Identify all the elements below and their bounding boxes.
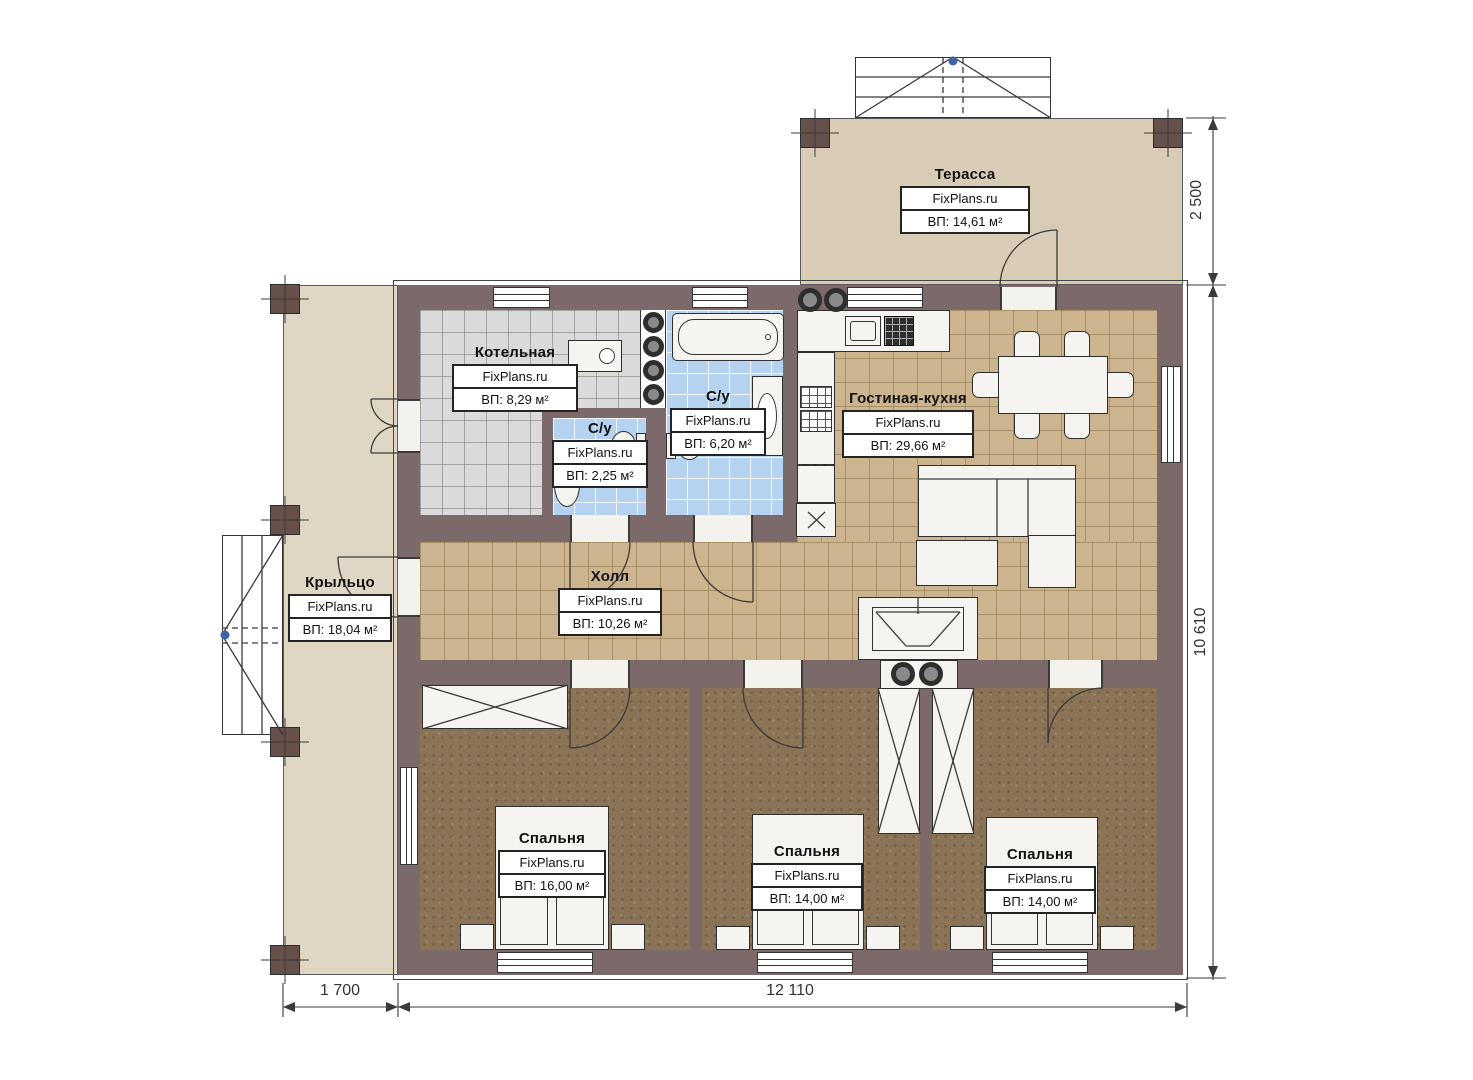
room-name: Гостиная-кухня	[842, 390, 974, 407]
bathtub-drain	[765, 334, 771, 340]
watermark-text: FixPlans.ru	[902, 188, 1028, 211]
window-top-1	[493, 287, 550, 308]
stove-burners	[800, 386, 832, 408]
terrace-column	[1153, 118, 1183, 148]
sink-basin	[850, 321, 876, 341]
label-box: FixPlans.ru ВП: 14,00 м²	[984, 866, 1096, 914]
watermark-text: FixPlans.ru	[554, 442, 646, 465]
label-box: FixPlans.ru ВП: 18,04 м²	[288, 594, 392, 642]
room-area: ВП: 16,00 м²	[500, 875, 604, 896]
coffee-table	[916, 540, 998, 586]
wardrobe	[932, 688, 974, 834]
watermark-text: FixPlans.ru	[672, 410, 764, 433]
dining-table	[998, 356, 1108, 414]
sofa-chaise	[1028, 535, 1076, 588]
room-label-bedroom-1: Спальня FixPlans.ru ВП: 16,00 м²	[498, 830, 606, 898]
nightstand	[716, 926, 750, 950]
wall-bedroom-1-2	[690, 688, 702, 950]
bed-pillow	[556, 895, 604, 945]
boiler-dial	[599, 348, 615, 364]
kitchen-counter-left	[797, 352, 835, 465]
porch-column	[270, 727, 300, 757]
dim-house-width: 12 110	[750, 982, 830, 1002]
room-label-bath-small: С/у FixPlans.ru ВП: 2,25 м²	[552, 420, 648, 488]
dish-rack	[884, 316, 914, 346]
room-name: Терасса	[900, 166, 1030, 183]
window-living	[1161, 366, 1181, 463]
dim-terrace-depth: 2 500	[1188, 160, 1208, 240]
room-area: ВП: 6,20 м²	[672, 433, 764, 454]
nightstand	[1100, 926, 1134, 950]
door-porch-hall	[398, 557, 420, 617]
wall-bath-divider	[646, 408, 666, 515]
nightstand	[460, 924, 494, 950]
label-box: FixPlans.ru ВП: 16,00 м²	[498, 850, 606, 898]
watermark-text: FixPlans.ru	[753, 865, 861, 888]
watermark-text: FixPlans.ru	[290, 596, 390, 619]
bathtub-basin	[678, 319, 778, 355]
bathtub	[672, 313, 784, 361]
room-name: Холл	[558, 568, 662, 585]
window-bedroom-1	[497, 952, 593, 973]
water-heater-coil	[643, 336, 664, 357]
label-box: FixPlans.ru ВП: 29,66 м²	[842, 410, 974, 458]
nightstand	[611, 924, 645, 950]
door-bath-large	[693, 515, 753, 542]
window-kitchen	[847, 287, 923, 308]
label-box: FixPlans.ru ВП: 8,29 м²	[452, 364, 578, 412]
hob-burner	[824, 288, 848, 312]
label-box: FixPlans.ru ВП: 6,20 м²	[670, 408, 766, 456]
watermark-text: FixPlans.ru	[986, 868, 1094, 891]
door-bedroom-2	[743, 660, 803, 688]
room-label-bedroom-3: Спальня FixPlans.ru ВП: 14,00 м²	[984, 846, 1096, 914]
room-label-boiler: Котельная FixPlans.ru ВП: 8,29 м²	[452, 344, 578, 412]
room-name: Спальня	[498, 830, 606, 847]
window-bedroom-3	[992, 952, 1088, 973]
window-top-2	[692, 287, 748, 308]
sofa	[918, 465, 1076, 537]
porch-column	[270, 284, 300, 314]
terrace-column	[800, 118, 830, 148]
fridge	[796, 503, 836, 537]
porch-steps	[222, 535, 283, 735]
door-bedroom-1	[570, 660, 630, 688]
watermark-text: FixPlans.ru	[454, 366, 576, 389]
room-area: ВП: 14,00 м²	[986, 891, 1094, 912]
kitchen-sink	[845, 316, 881, 346]
wall-left	[398, 285, 420, 975]
window-bedroom-2	[757, 952, 853, 973]
chimney-flue	[891, 662, 915, 686]
wardrobe	[878, 688, 920, 834]
room-area: ВП: 10,26 м²	[560, 613, 660, 634]
room-area: ВП: 14,61 м²	[902, 211, 1028, 232]
room-label-bath-large: С/у FixPlans.ru ВП: 6,20 м²	[670, 388, 766, 456]
wall-bedroom-2-3	[920, 688, 932, 950]
room-name: Крыльцо	[288, 574, 392, 591]
label-box: FixPlans.ru ВП: 14,00 м²	[751, 863, 863, 911]
room-area: ВП: 14,00 м²	[753, 888, 861, 909]
room-label-hall: Холл FixPlans.ru ВП: 10,26 м²	[558, 568, 662, 636]
porch-column	[270, 505, 300, 535]
watermark-text: FixPlans.ru	[500, 852, 604, 875]
room-label-porch: Крыльцо FixPlans.ru ВП: 18,04 м²	[288, 574, 392, 642]
room-area: ВП: 2,25 м²	[554, 465, 646, 486]
room-area: ВП: 8,29 м²	[454, 389, 576, 410]
dim-porch-width: 1 700	[300, 982, 380, 1002]
room-area: ВП: 29,66 м²	[844, 435, 972, 456]
chimney-flue	[919, 662, 943, 686]
dim-house-depth: 10 610	[1192, 592, 1212, 672]
door-bedroom-3	[1048, 660, 1103, 688]
wall-bath-kitchen	[783, 285, 797, 542]
stove-burners	[800, 410, 832, 432]
room-label-living-kitchen: Гостиная-кухня FixPlans.ru ВП: 29,66 м²	[842, 390, 974, 458]
kitchen-cabinet	[797, 465, 835, 503]
door-bath-small	[570, 515, 630, 542]
room-name: Котельная	[452, 344, 578, 361]
label-box: FixPlans.ru ВП: 10,26 м²	[558, 588, 662, 636]
room-label-terrace: Терасса FixPlans.ru ВП: 14,61 м²	[900, 166, 1030, 234]
hob-burner	[798, 288, 822, 312]
room-label-bedroom-2: Спальня FixPlans.ru ВП: 14,00 м²	[751, 843, 863, 911]
terrace-steps	[855, 57, 1051, 118]
door-porch-boiler	[398, 399, 420, 453]
porch-column	[270, 945, 300, 975]
room-name: С/у	[552, 420, 648, 437]
nightstand	[950, 926, 984, 950]
nightstand	[866, 926, 900, 950]
door-terrace	[1000, 287, 1057, 310]
room-name: Спальня	[984, 846, 1096, 863]
room-area: ВП: 18,04 м²	[290, 619, 390, 640]
water-heater-coil	[643, 312, 664, 333]
room-name: С/у	[670, 388, 766, 405]
room-name: Спальня	[751, 843, 863, 860]
wardrobe	[422, 685, 568, 729]
label-box: FixPlans.ru ВП: 14,61 м²	[900, 186, 1030, 234]
watermark-text: FixPlans.ru	[560, 590, 660, 613]
label-box: FixPlans.ru ВП: 2,25 м²	[552, 440, 648, 488]
window-bedroom-1-side	[400, 767, 418, 865]
fireplace-hearth	[872, 607, 964, 651]
floor-plan: Терасса FixPlans.ru ВП: 14,61 м² Котельн…	[0, 0, 1473, 1080]
watermark-text: FixPlans.ru	[844, 412, 972, 435]
water-heater-coil	[643, 384, 664, 405]
water-heater-coil	[643, 360, 664, 381]
bed-pillow	[500, 895, 548, 945]
